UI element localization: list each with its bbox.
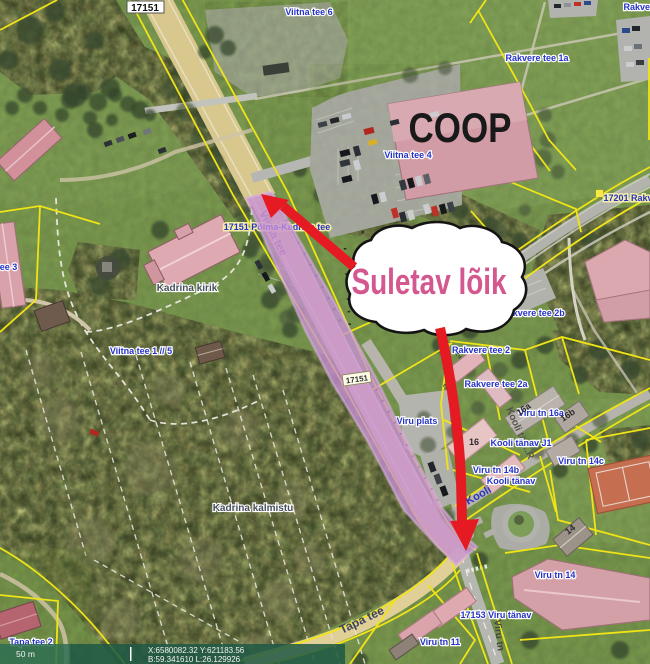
svg-text:Viru plats: Viru plats — [397, 416, 438, 426]
svg-text:B:59.341610 L:26.129926: B:59.341610 L:26.129926 — [148, 655, 241, 664]
svg-text:Kadrina kirik: Kadrina kirik — [157, 283, 218, 294]
svg-text:COOP: COOP — [409, 104, 512, 151]
svg-text:Viitna tee 4: Viitna tee 4 — [384, 150, 431, 160]
svg-text:Viru tn 14: Viru tn 14 — [535, 570, 576, 580]
svg-text:Rakvere: Rakvere — [623, 2, 650, 12]
svg-text:Rakvere tee 2a: Rakvere tee 2a — [464, 379, 528, 389]
svg-text:Viru tn 11: Viru tn 11 — [420, 637, 460, 647]
svg-text:X:6580082.32 Y:621183.56: X:6580082.32 Y:621183.56 — [148, 646, 245, 655]
svg-text:tee 3: tee 3 — [0, 262, 17, 272]
svg-text:Rakvere tee 2: Rakvere tee 2 — [452, 345, 510, 355]
svg-text:Viitna tee 6: Viitna tee 6 — [285, 7, 332, 17]
svg-text:Viru tn 14c: Viru tn 14c — [558, 456, 604, 466]
svg-text:Kooli tänav J1: Kooli tänav J1 — [490, 438, 551, 448]
svg-text:Viru tn 14b: Viru tn 14b — [473, 465, 520, 475]
svg-text:17153 Viru tänav: 17153 Viru tänav — [461, 610, 532, 620]
svg-text:Suletav lõik: Suletav lõik — [352, 261, 508, 302]
svg-text:17151: 17151 — [131, 3, 159, 14]
svg-text:Viitna tee 1 // 5: Viitna tee 1 // 5 — [110, 346, 172, 356]
svg-text:17201 Rakv: 17201 Rakv — [603, 193, 650, 203]
svg-text:50 m: 50 m — [16, 649, 35, 659]
svg-text:16: 16 — [469, 437, 479, 447]
svg-text:Rakvere tee 1a: Rakvere tee 1a — [505, 53, 569, 63]
svg-text:Kooli tänav: Kooli tänav — [487, 476, 536, 486]
svg-text:Kadrina kalmistu: Kadrina kalmistu — [213, 503, 294, 514]
